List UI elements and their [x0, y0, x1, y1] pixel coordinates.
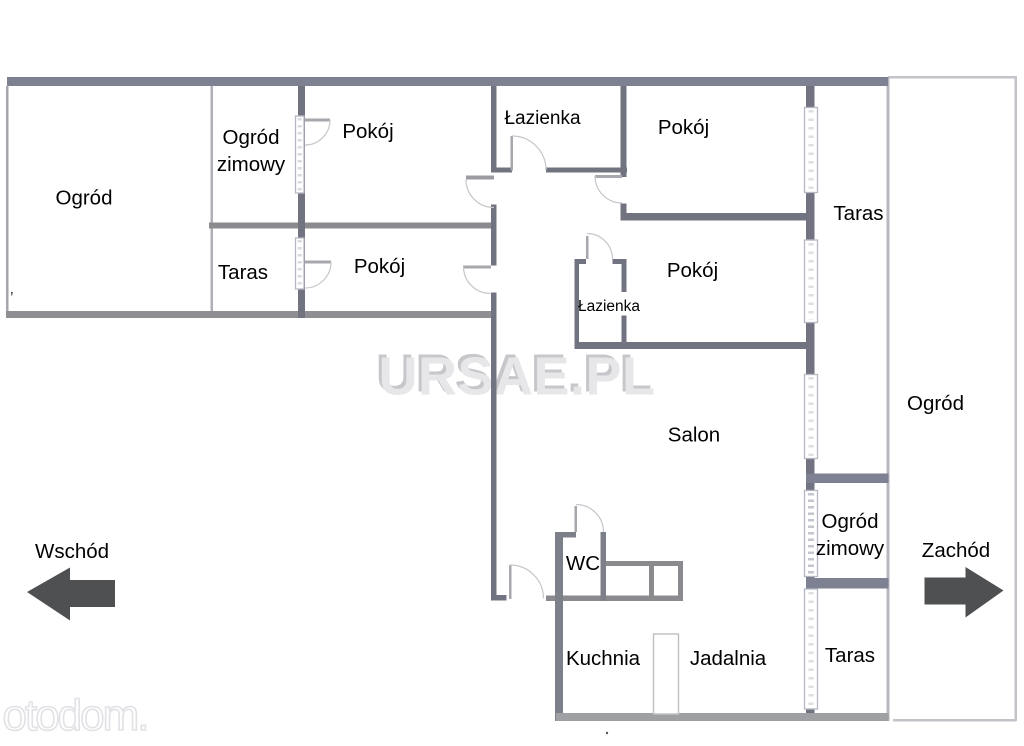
svg-text:Taras: Taras — [825, 644, 875, 667]
svg-text:Ogród: Ogród — [56, 187, 113, 210]
svg-text:WC: WC — [566, 552, 600, 575]
svg-text:Taras: Taras — [833, 202, 883, 225]
svg-text:Salon: Salon — [668, 424, 720, 447]
svg-text:Pokój: Pokój — [658, 116, 709, 139]
svg-text:Łazienka: Łazienka — [504, 108, 580, 129]
svg-text:Kuchnia: Kuchnia — [566, 647, 641, 670]
svg-text:Jadalnia: Jadalnia — [690, 647, 767, 670]
svg-text:Ogród: Ogród — [822, 510, 879, 533]
svg-text:Łazienka: Łazienka — [578, 298, 640, 315]
svg-text:Zachód: Zachód — [922, 539, 990, 562]
svg-text:Wschód: Wschód — [35, 540, 109, 563]
svg-text:Pokój: Pokój — [342, 120, 393, 143]
svg-text:Taras: Taras — [218, 261, 268, 284]
svg-text:otodom.: otodom. — [3, 691, 148, 740]
svg-text:Ogród: Ogród — [223, 126, 280, 149]
svg-text:Pokój: Pokój — [354, 255, 405, 278]
svg-text:zimowy: zimowy — [816, 537, 885, 560]
svg-text:Pokój: Pokój — [667, 259, 718, 282]
svg-text:’: ’ — [10, 290, 14, 307]
svg-text:Ogród: Ogród — [907, 392, 964, 415]
svg-text:zimowy: zimowy — [217, 153, 286, 176]
svg-text:URSAE.PL: URSAE.PL — [378, 347, 655, 407]
